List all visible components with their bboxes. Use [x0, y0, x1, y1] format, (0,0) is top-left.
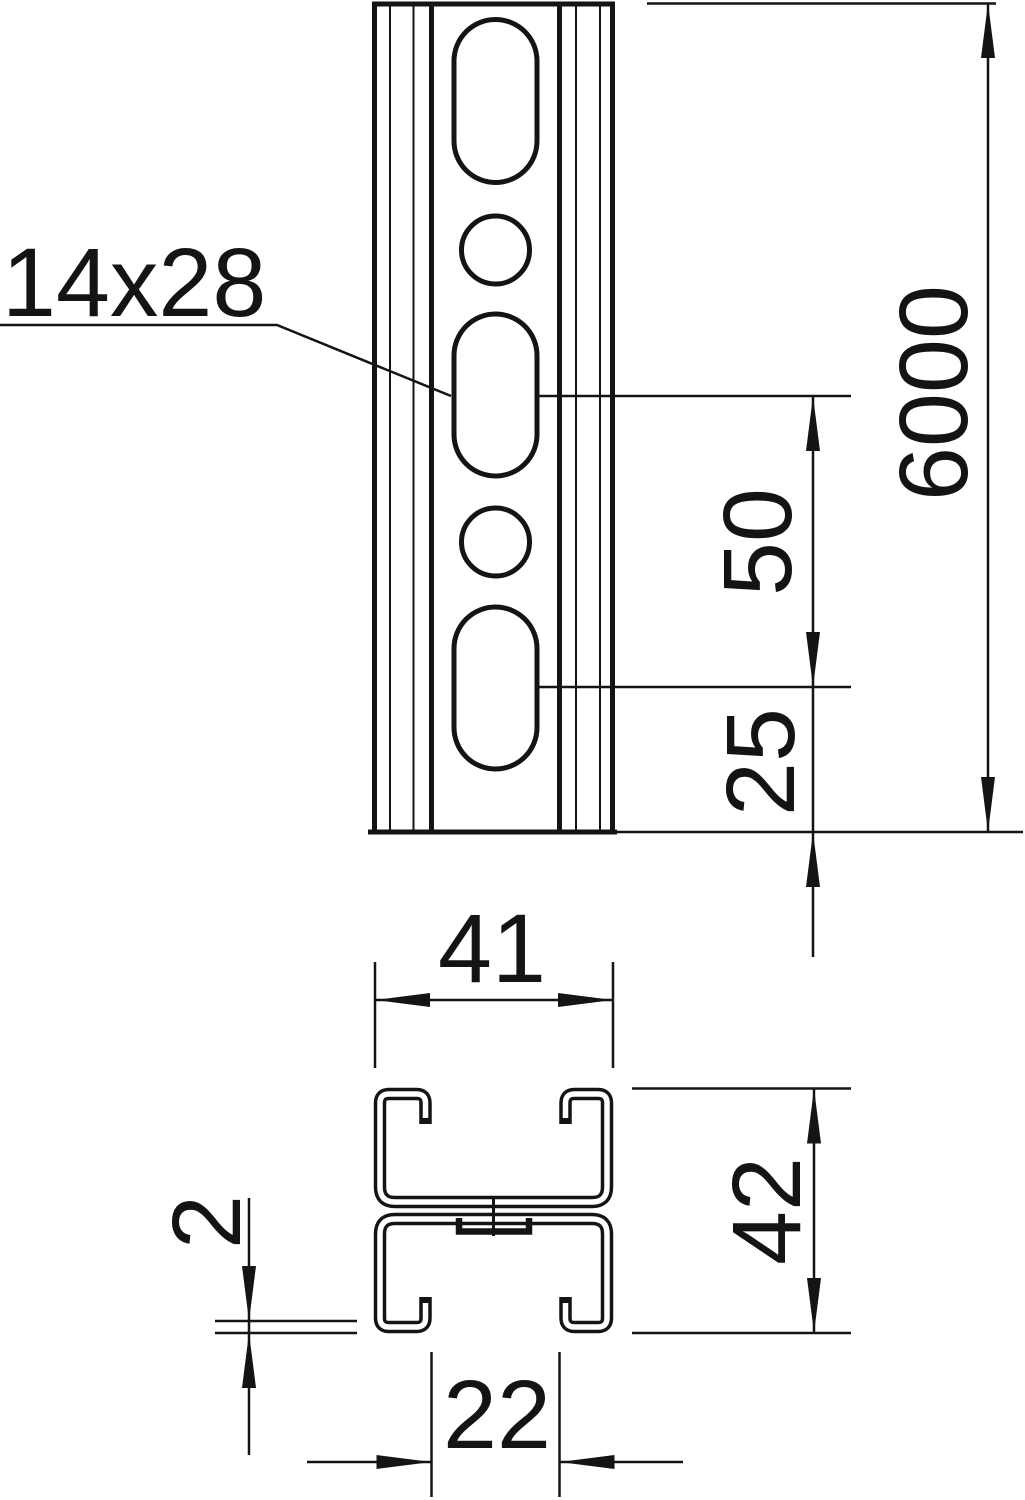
dim-6000-arrow-up: [981, 3, 995, 58]
rail-holes: [454, 20, 537, 770]
section-view: [380, 1094, 607, 1327]
slot-size-label: 14x28: [2, 228, 266, 337]
dim-50-arrow-down: [806, 632, 820, 687]
dim-22-arrow-right: [377, 1455, 432, 1469]
dim-25: 25: [706, 687, 820, 957]
round-hole-2: [462, 508, 530, 576]
dim-50: 50: [539, 396, 851, 687]
dim-2-arrow-up: [242, 1333, 256, 1388]
dim-41: 41: [375, 894, 613, 1068]
rail-outline: [368, 2, 617, 834]
section-top-channel-core: [380, 1094, 607, 1202]
dim-42-arrow-up: [807, 1089, 821, 1144]
section-top-channel-outer: [380, 1094, 607, 1202]
dim-41-arrow-right: [558, 993, 613, 1007]
dim-50-arrow-up: [806, 396, 820, 451]
dim-42-arrow-down: [807, 1278, 821, 1333]
dim-2: 2: [152, 1195, 357, 1455]
dim-6000-text: 6000: [879, 285, 988, 501]
profile-rail-drawing: 14x28 6000 50 25: [0, 0, 1025, 1500]
slot-size-callout: 14x28: [0, 228, 451, 396]
dim-42: 42: [632, 1089, 851, 1334]
slot-hole-bottom: [454, 607, 537, 769]
dim-22-text: 22: [443, 1360, 551, 1469]
dim-41-arrow-left: [375, 993, 430, 1007]
front-view: [368, 2, 617, 834]
dim-42-text: 42: [712, 1157, 821, 1265]
dim-2-arrow-down: [242, 1266, 256, 1321]
round-hole-1: [462, 216, 530, 284]
slot-hole-middle: [454, 314, 537, 476]
dim-41-text: 41: [438, 894, 546, 1003]
dim-6000-arrow-down: [981, 777, 995, 832]
dim-50-text: 50: [703, 488, 812, 596]
slot-hole-top: [454, 20, 537, 183]
dim-2-text: 2: [152, 1195, 261, 1249]
technical-drawing-page: 14x28 6000 50 25: [0, 0, 1025, 1500]
dim-6000: 6000: [617, 3, 1023, 832]
dim-25-text: 25: [706, 708, 815, 816]
dim-25-arrow-up: [806, 832, 820, 887]
dim-22: 22: [307, 1352, 683, 1497]
dim-22-arrow-left: [560, 1455, 615, 1469]
